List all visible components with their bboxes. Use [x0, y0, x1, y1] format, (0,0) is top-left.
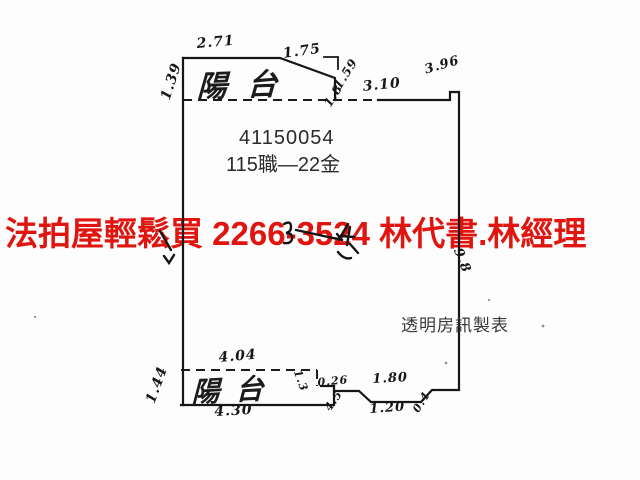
floorplan-drawing — [0, 0, 640, 480]
floorplan-corner-bracket — [324, 57, 338, 69]
floorplan-top-balcony-outline — [183, 58, 335, 100]
scanned-floorplan-page: 法拍屋輕鬆買 2266-3524 林代書.林經理 — [0, 0, 640, 480]
handwritten-scribbles — [160, 223, 358, 263]
paper-specks — [34, 299, 544, 364]
floorplan-bottom-balcony-dashed — [181, 370, 317, 386]
floorplan-bottom-balcony-outline — [181, 386, 334, 405]
